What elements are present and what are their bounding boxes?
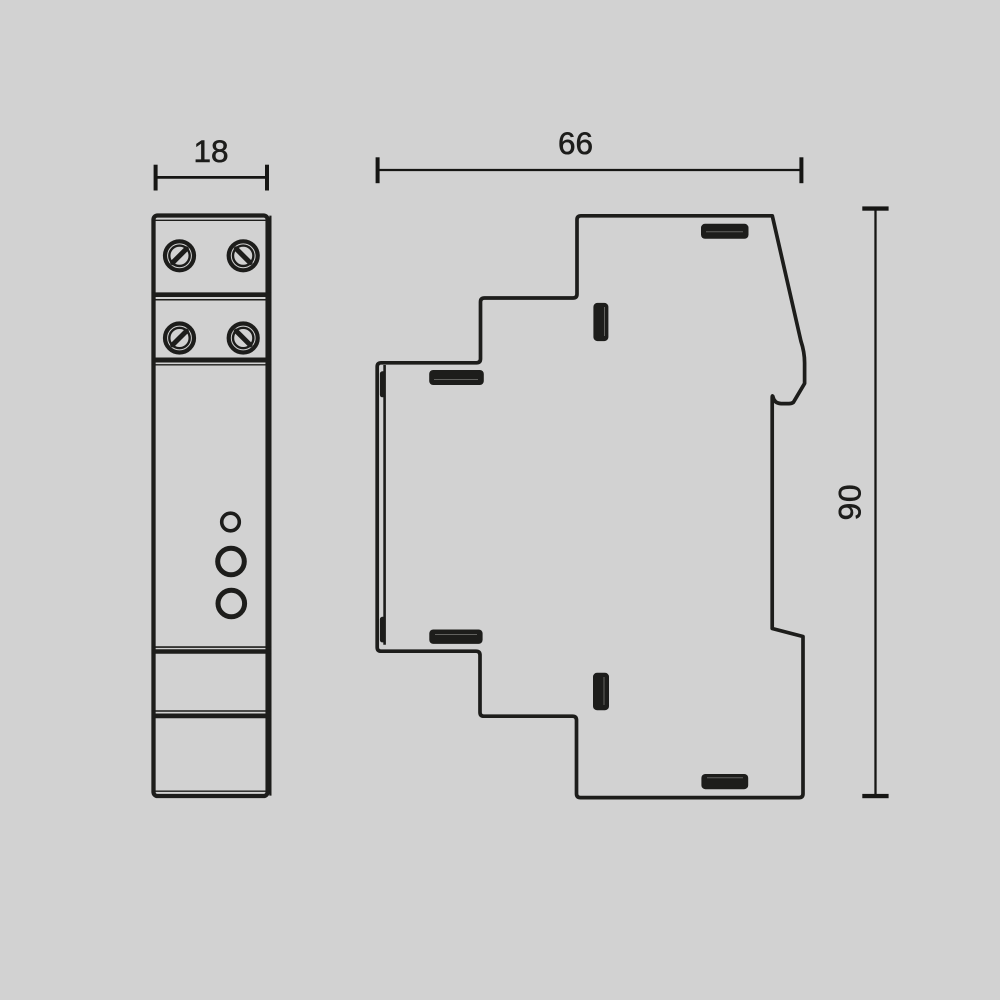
svg-text:66: 66 [558,125,593,161]
svg-text:90: 90 [831,484,867,521]
svg-text:18: 18 [193,133,228,169]
